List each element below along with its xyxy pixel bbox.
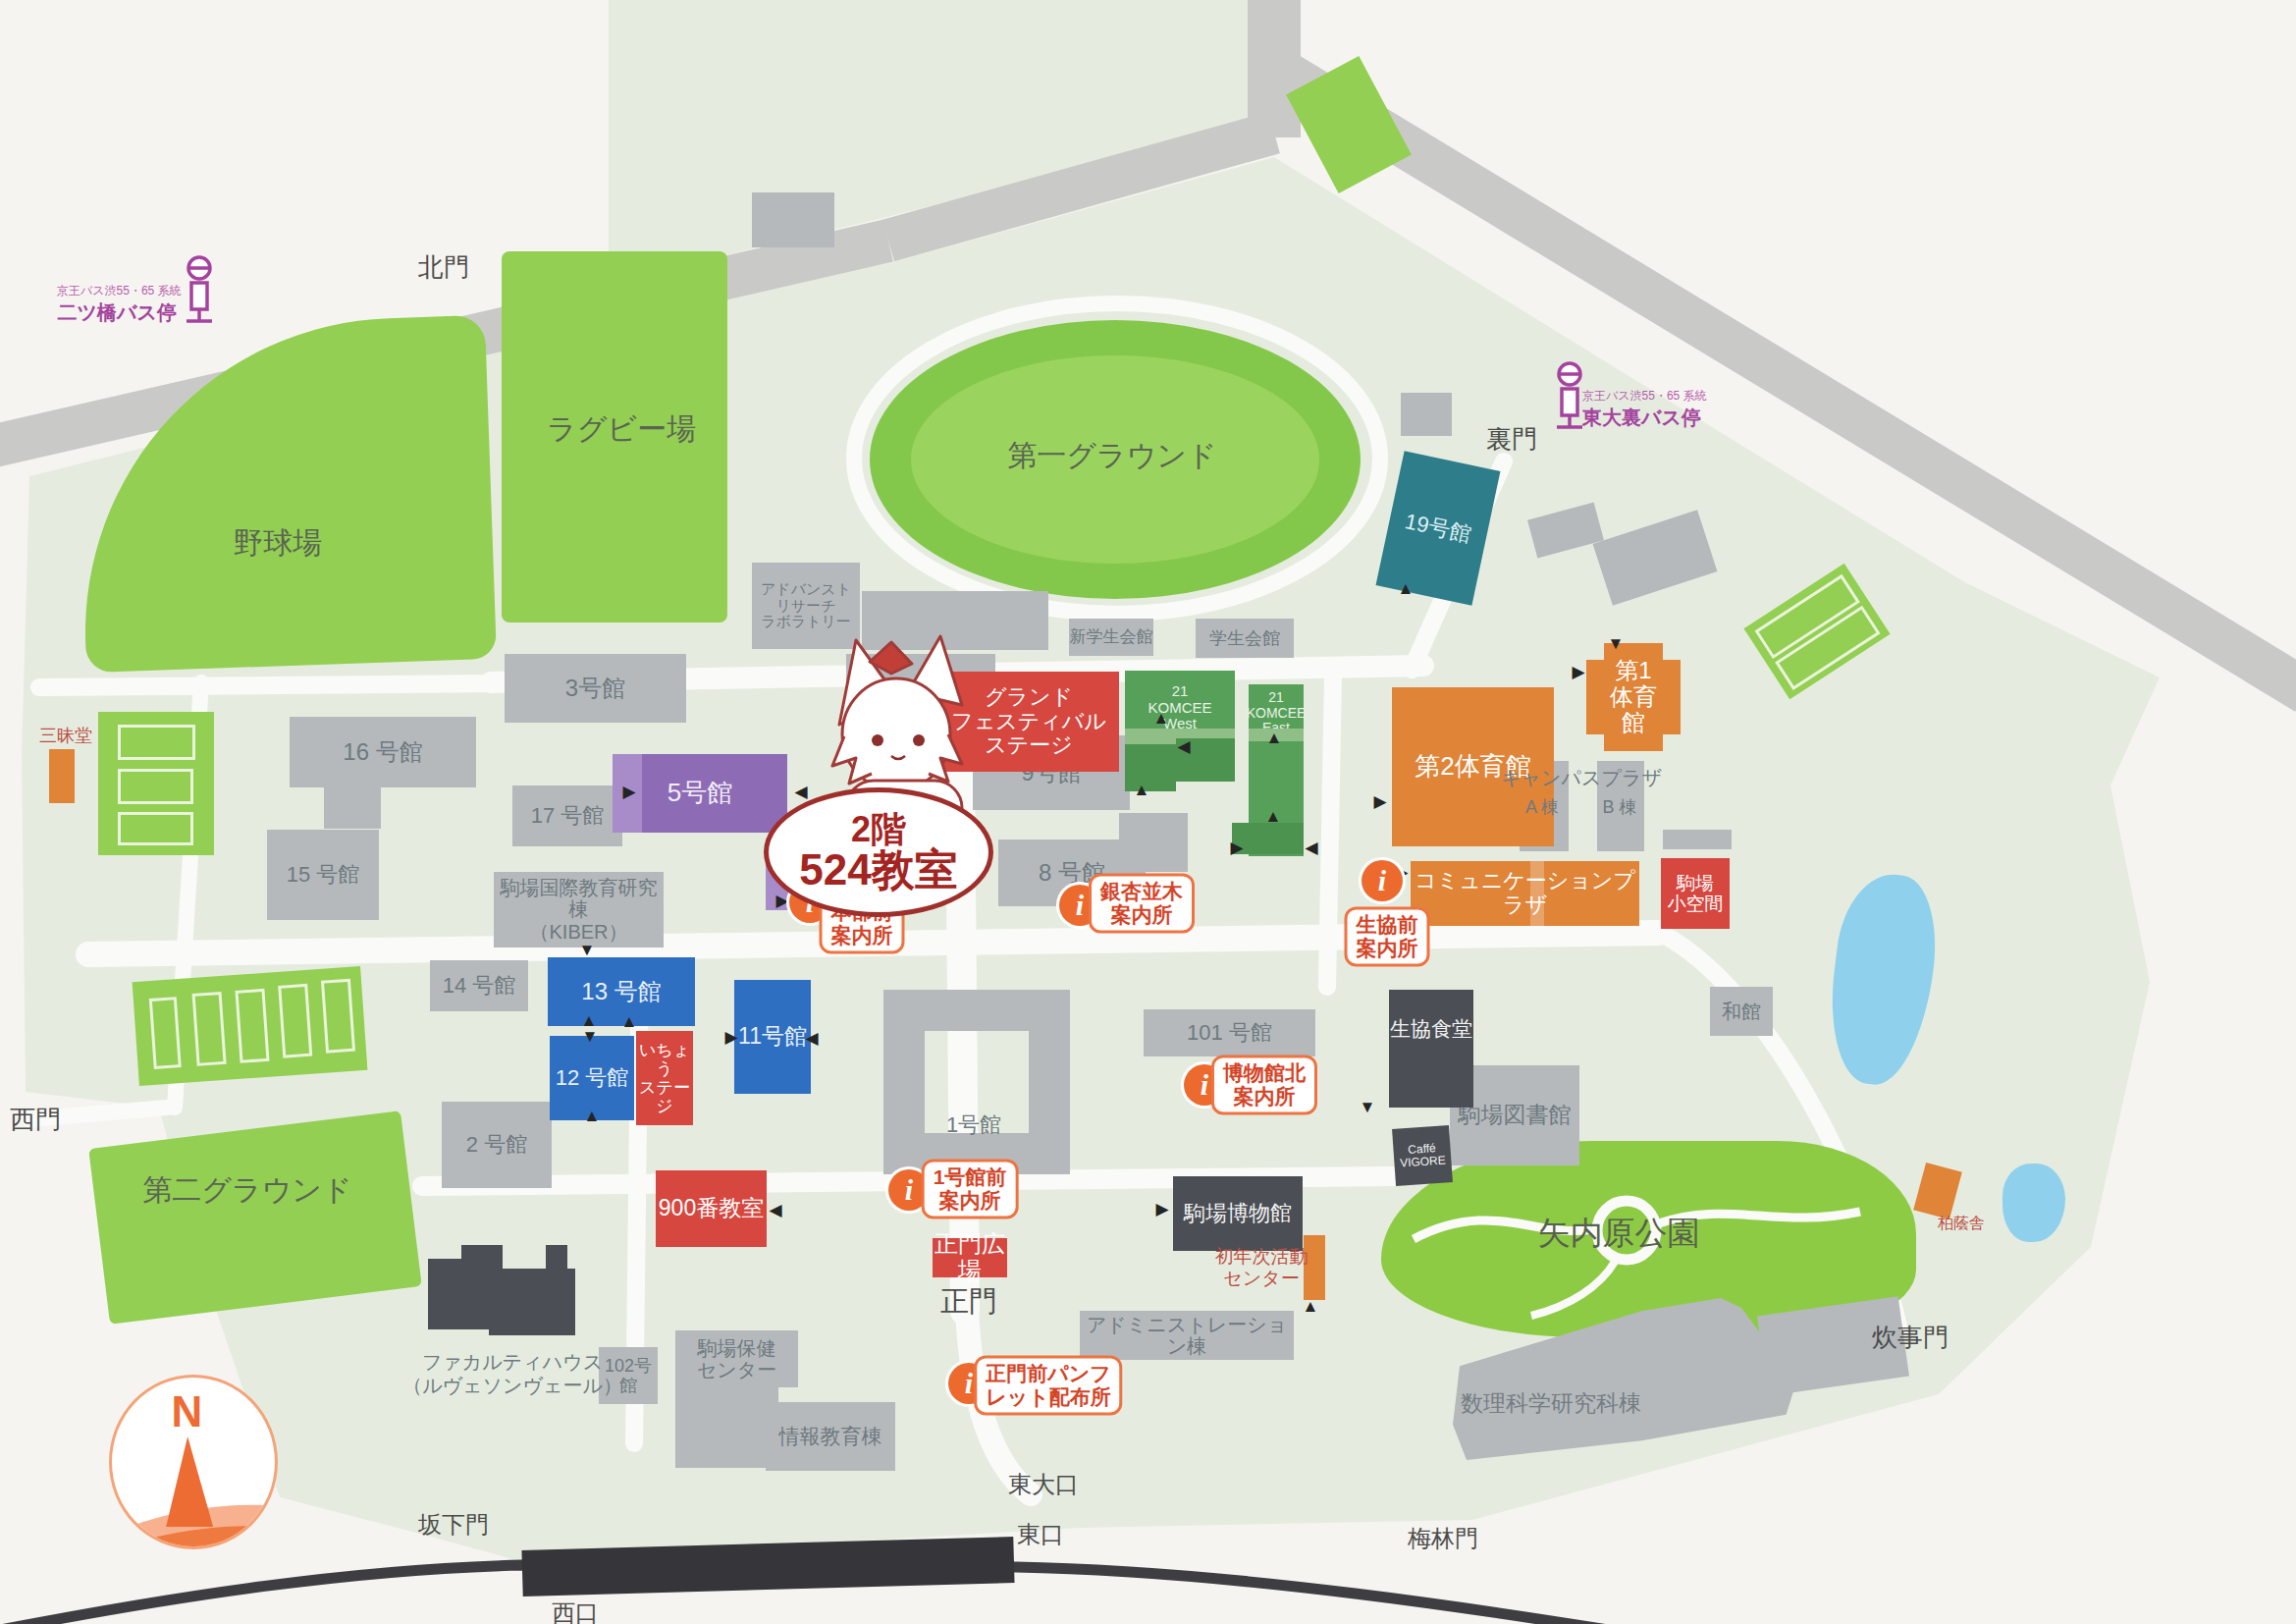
- park-label: 矢内原公園: [1538, 1215, 1700, 1253]
- campus-plaza-label: キャンパスプラザ: [1501, 767, 1662, 790]
- building-16-annex: [324, 787, 381, 829]
- entrance-arrow: ▶: [1155, 1199, 1168, 1219]
- building-gym1: 第1 体育館: [1604, 643, 1663, 751]
- entrance-arrow: ◀: [1305, 838, 1317, 858]
- bus-stop-icon: [179, 255, 220, 330]
- entrance-arrow: ▼: [1608, 634, 1625, 654]
- info-b1-mae-label: 1号館前 案内所: [922, 1159, 1019, 1218]
- building-5: 5号館: [613, 754, 787, 833]
- campus-map: 野球場 ラグビー場 第一グラウンド 第二グラウンド 矢内原公園 3号館 6号館: [0, 0, 2296, 1624]
- entrance-arrow: ▶: [775, 891, 788, 911]
- building: [1401, 393, 1452, 436]
- building-17: 17 号館: [512, 785, 622, 846]
- entrance-arrow: ▲: [1265, 807, 1282, 827]
- entrance-arrow: ▲: [1134, 781, 1150, 800]
- building-11: 11号館: [734, 980, 811, 1094]
- building-15: 15 号館: [267, 830, 379, 920]
- bus-stop-label: 二ツ橋バス停: [57, 299, 177, 326]
- gate-main-label: 正門: [940, 1284, 997, 1318]
- entrance-arrow: ▲: [1398, 579, 1415, 599]
- sanmaido-label: 三昧堂: [39, 726, 92, 746]
- plaza-b-label: B 棟: [1602, 797, 1636, 818]
- plaza-a-label: A 棟: [1525, 797, 1559, 818]
- entrance-arrow: ▼: [579, 941, 596, 960]
- building-joho: 情報教育棟: [766, 1402, 895, 1471]
- building-1-label: 1号館: [946, 1112, 1001, 1138]
- info-seikyo-mae-label: 生協前 案内所: [1345, 906, 1430, 966]
- building-komaba-shokukan: 駒場 小空間: [1661, 858, 1730, 929]
- entrance-arrow: ▶: [622, 782, 635, 802]
- building-icho-stage: いちょう ステージ: [636, 1031, 693, 1125]
- building-faculty-house: [546, 1245, 567, 1284]
- building-cafe-vigore: Caffé VIGORE: [1392, 1125, 1453, 1186]
- entrance-arrow: ▼: [1360, 1098, 1376, 1117]
- entrance-arrow: ▲: [1266, 729, 1283, 748]
- info-pamphlet-label: 正門前パンフ レット配布所: [974, 1355, 1122, 1415]
- bus-stop-icon: [1549, 361, 1590, 436]
- gate-west-label: 西門: [10, 1105, 61, 1135]
- seimon-hiroba-badge: 正門広場: [933, 1238, 1007, 1277]
- bus-stop-todaiura: 京王バス渋55・65 系統 東大裏バス停: [1582, 388, 1707, 431]
- bus-stop-label: 東大裏バス停: [1582, 405, 1707, 431]
- gate-higashiguchi-label: 東口: [1017, 1521, 1064, 1548]
- compass: N: [109, 1375, 278, 1549]
- entrance-arrow: ▶: [1373, 791, 1386, 812]
- building-hoken-annex: [675, 1387, 778, 1468]
- entrance-arrow: ◀: [805, 1028, 818, 1049]
- baseball-field-label: 野球場: [234, 525, 322, 560]
- entrance-arrow: ▶: [724, 1027, 737, 1048]
- entrance-arrow: ▶: [1230, 838, 1243, 858]
- bus-stop-futatsubashi: 京王バス渋55・65 系統 二ツ橋バス停: [57, 283, 177, 326]
- gate-bairin-label: 梅林門: [1408, 1525, 1478, 1552]
- entrance-arrow: ▲: [1153, 709, 1170, 729]
- building-seikyo-shokudo: 生協食堂: [1389, 990, 1473, 1108]
- ground1-label: 第一グラウンド: [1007, 438, 1217, 472]
- ground2-label: 第二グラウンド: [142, 1172, 352, 1207]
- gate-sakashita-label: 坂下門: [418, 1511, 489, 1539]
- info-museum-north-label: 博物館北 案内所: [1211, 1055, 1317, 1114]
- callout-room: 524教室: [799, 848, 957, 893]
- building-8-annex: [1119, 813, 1188, 872]
- building-shin-gakusei: 新学生会館: [1069, 619, 1153, 656]
- callout-bubble: 2階 524教室: [764, 787, 993, 917]
- entrance-arrow: ▼: [582, 1027, 599, 1047]
- building-1: [883, 990, 1070, 1174]
- compass-north-label: N: [171, 1387, 202, 1436]
- building-900: 900番教室: [656, 1170, 767, 1247]
- compass-needle-icon: [166, 1436, 213, 1527]
- building-admin: アドミニストレーション棟: [1080, 1311, 1294, 1360]
- building-gakusei: 学生会館: [1196, 619, 1294, 658]
- rugby-field-label: ラグビー場: [547, 411, 696, 446]
- building-16: 16 号館: [290, 717, 476, 787]
- bus-route-label: 京王バス渋55・65 系統: [1582, 388, 1707, 405]
- building-101: 101 号館: [1144, 1009, 1315, 1056]
- building-comm-plaza: コミュニケーションプラザ: [1411, 861, 1639, 926]
- shonenji-label: 初年次活動 センター: [1215, 1246, 1308, 1290]
- building-museum: 駒場博物館: [1173, 1176, 1303, 1251]
- gate-north-label: 北門: [418, 252, 469, 283]
- entrance-arrow: ▲: [1303, 1297, 1319, 1317]
- gate-suiji-label: 炊事門: [1872, 1323, 1949, 1353]
- hakuinsha-label: 柏蔭舎: [1938, 1215, 1985, 1233]
- building-hoken: 駒場保健 センター: [675, 1330, 798, 1387]
- info-icho-namiki-label: 銀杏並木 案内所: [1089, 873, 1195, 933]
- bus-route-label: 京王バス渋55・65 系統: [57, 283, 177, 299]
- faculty-house-label: ファカルティハウス （ルヴェソンヴェール）: [402, 1351, 622, 1397]
- entrance-arrow: ▶: [1572, 662, 1584, 682]
- gate-ura-label: 裏門: [1486, 424, 1537, 455]
- gate-nishiguchi-label: 西口: [552, 1599, 599, 1624]
- callout-floor: 2階: [851, 812, 906, 848]
- building-sanmaido: [49, 749, 75, 803]
- info-icon: i: [1362, 860, 1403, 901]
- entrance-arrow: ◀: [769, 1200, 781, 1220]
- building-14: 14 号館: [430, 960, 528, 1011]
- entrance-arrow: ◀: [1177, 736, 1190, 757]
- building-wakan: 和館: [1710, 987, 1773, 1036]
- building-kiber: 駒場国際教育研究棟 （KIBER）: [494, 872, 664, 947]
- building-2: 2 号館: [442, 1102, 552, 1188]
- entrance-arrow: ▲: [621, 1012, 638, 1032]
- gate-todaiguchi-label: 東大口: [1008, 1471, 1079, 1498]
- building-3: 3号館: [505, 654, 686, 723]
- entrance-arrow: ▲: [584, 1107, 601, 1126]
- building: [752, 192, 834, 247]
- building: [1663, 830, 1732, 849]
- building-suri-label: 数理科学研究科棟: [1461, 1390, 1641, 1417]
